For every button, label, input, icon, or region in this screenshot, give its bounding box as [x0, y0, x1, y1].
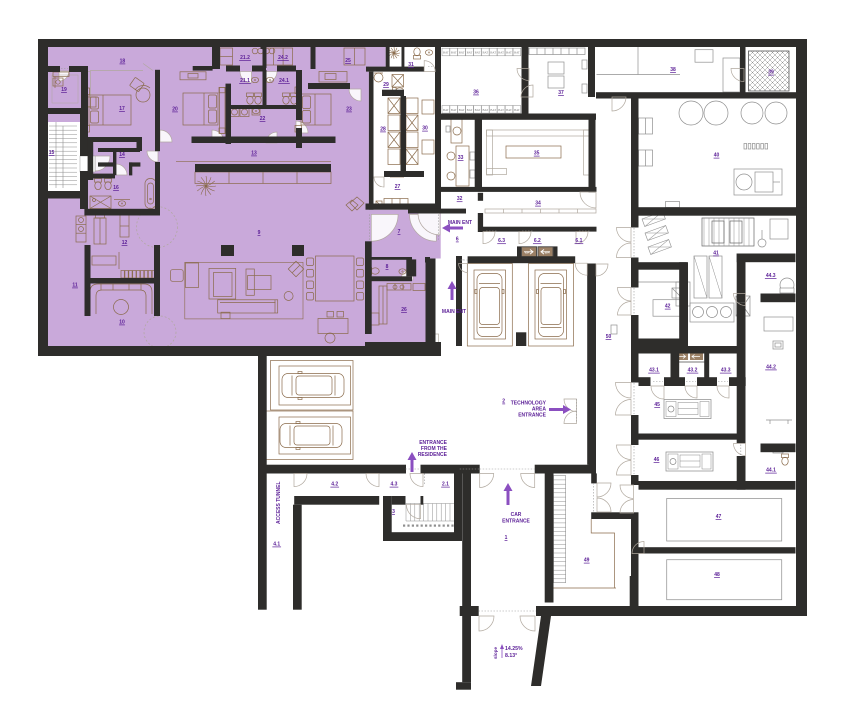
- svg-text:28: 28: [380, 126, 386, 132]
- svg-text:24.1: 24.1: [279, 78, 289, 84]
- svg-text:34: 34: [535, 201, 541, 207]
- svg-text:ACCESS TUNNEL: ACCESS TUNNEL: [276, 481, 282, 524]
- svg-text:45: 45: [654, 402, 660, 408]
- svg-text:11: 11: [72, 282, 78, 288]
- svg-text:17: 17: [119, 106, 125, 112]
- svg-text:BAT: BAT: [514, 51, 520, 55]
- svg-text:50: 50: [606, 334, 612, 340]
- svg-text:44.3: 44.3: [766, 273, 776, 279]
- svg-text:RESIDENCE: RESIDENCE: [418, 452, 448, 458]
- svg-text:BAT: BAT: [498, 108, 504, 112]
- svg-text:30: 30: [422, 126, 428, 132]
- svg-text:9: 9: [258, 230, 261, 236]
- svg-text:31: 31: [408, 62, 414, 68]
- svg-text:BAT: BAT: [467, 108, 473, 112]
- svg-text:37: 37: [558, 90, 564, 96]
- svg-text:35: 35: [534, 151, 540, 157]
- svg-text:13: 13: [251, 150, 257, 156]
- svg-text:21.2: 21.2: [240, 55, 250, 61]
- svg-text:25: 25: [345, 58, 351, 64]
- svg-text:19: 19: [61, 87, 67, 93]
- svg-text:39: 39: [768, 70, 774, 76]
- svg-text:6.2: 6.2: [534, 238, 541, 244]
- svg-text:14.25%: 14.25%: [505, 646, 523, 652]
- svg-text:ENTRANCE: ENTRANCE: [502, 519, 530, 525]
- svg-text:32: 32: [457, 196, 463, 202]
- svg-text:slope: slope: [493, 647, 498, 659]
- svg-text:47: 47: [716, 514, 722, 520]
- svg-text:44.1: 44.1: [766, 468, 776, 474]
- svg-text:43.2: 43.2: [688, 368, 698, 374]
- svg-text:49: 49: [584, 558, 590, 564]
- svg-text:21.1: 21.1: [240, 78, 250, 84]
- svg-text:BAT: BAT: [451, 51, 457, 55]
- svg-text:BAT: BAT: [443, 108, 449, 112]
- svg-text:8.13°: 8.13°: [505, 653, 517, 659]
- svg-text:38: 38: [670, 67, 676, 73]
- svg-text:BAT: BAT: [467, 51, 473, 55]
- svg-text:4.3: 4.3: [391, 482, 398, 488]
- svg-text:4.1: 4.1: [273, 541, 280, 547]
- svg-text:2.1: 2.1: [442, 482, 449, 488]
- svg-text:46: 46: [654, 457, 660, 463]
- svg-text:22: 22: [260, 116, 266, 122]
- svg-text:BAT: BAT: [451, 108, 457, 112]
- svg-text:14: 14: [119, 152, 125, 158]
- svg-text:26: 26: [401, 307, 407, 313]
- svg-text:4.2: 4.2: [331, 482, 338, 488]
- svg-text:3: 3: [392, 509, 395, 515]
- svg-text:BAT: BAT: [506, 51, 512, 55]
- svg-text:6: 6: [456, 236, 459, 242]
- svg-text:16: 16: [113, 185, 119, 191]
- svg-text:8: 8: [386, 264, 389, 270]
- svg-text:CAR: CAR: [511, 512, 522, 518]
- svg-text:BAT: BAT: [459, 108, 465, 112]
- svg-text:7: 7: [398, 229, 401, 235]
- svg-text:23: 23: [346, 106, 352, 112]
- svg-text:43.1: 43.1: [649, 368, 659, 374]
- svg-text:UP: UP: [525, 251, 529, 255]
- svg-text:BAT: BAT: [490, 108, 496, 112]
- svg-text:27: 27: [395, 184, 401, 190]
- svg-text:41: 41: [713, 250, 719, 256]
- svg-text:1: 1: [505, 535, 508, 541]
- svg-text:24.2: 24.2: [278, 55, 288, 61]
- svg-text:29: 29: [383, 82, 389, 88]
- svg-text:6.1: 6.1: [575, 238, 582, 244]
- svg-text:BAT: BAT: [498, 51, 504, 55]
- svg-text:42: 42: [665, 304, 671, 310]
- svg-text:MAIN ENT: MAIN ENT: [448, 220, 472, 226]
- svg-text:36: 36: [473, 89, 479, 95]
- svg-text:18: 18: [120, 58, 126, 64]
- svg-text:BAT: BAT: [475, 51, 481, 55]
- svg-text:2: 2: [502, 398, 505, 404]
- svg-text:6.3: 6.3: [498, 238, 505, 244]
- svg-text:BAT: BAT: [514, 108, 520, 112]
- svg-text:BAT: BAT: [475, 108, 481, 112]
- svg-text:BAT: BAT: [482, 108, 488, 112]
- svg-text:BAT: BAT: [490, 51, 496, 55]
- svg-text:BAT: BAT: [443, 51, 449, 55]
- svg-text:20: 20: [172, 106, 178, 112]
- svg-text:BAT: BAT: [506, 108, 512, 112]
- svg-text:43.3: 43.3: [721, 368, 731, 374]
- svg-text:12: 12: [122, 240, 128, 246]
- svg-text:44.2: 44.2: [766, 364, 776, 370]
- svg-text:ENTRANCE: ENTRANCE: [518, 413, 546, 419]
- svg-text:BAT: BAT: [482, 51, 488, 55]
- svg-text:BAT: BAT: [459, 51, 465, 55]
- svg-text:15: 15: [49, 150, 55, 156]
- svg-text:33: 33: [458, 155, 464, 161]
- svg-text:40: 40: [714, 153, 720, 159]
- svg-text:DN: DN: [545, 251, 550, 255]
- svg-text:10: 10: [119, 319, 125, 325]
- svg-text:48: 48: [714, 572, 720, 578]
- svg-text:MAIN ENT: MAIN ENT: [442, 309, 466, 315]
